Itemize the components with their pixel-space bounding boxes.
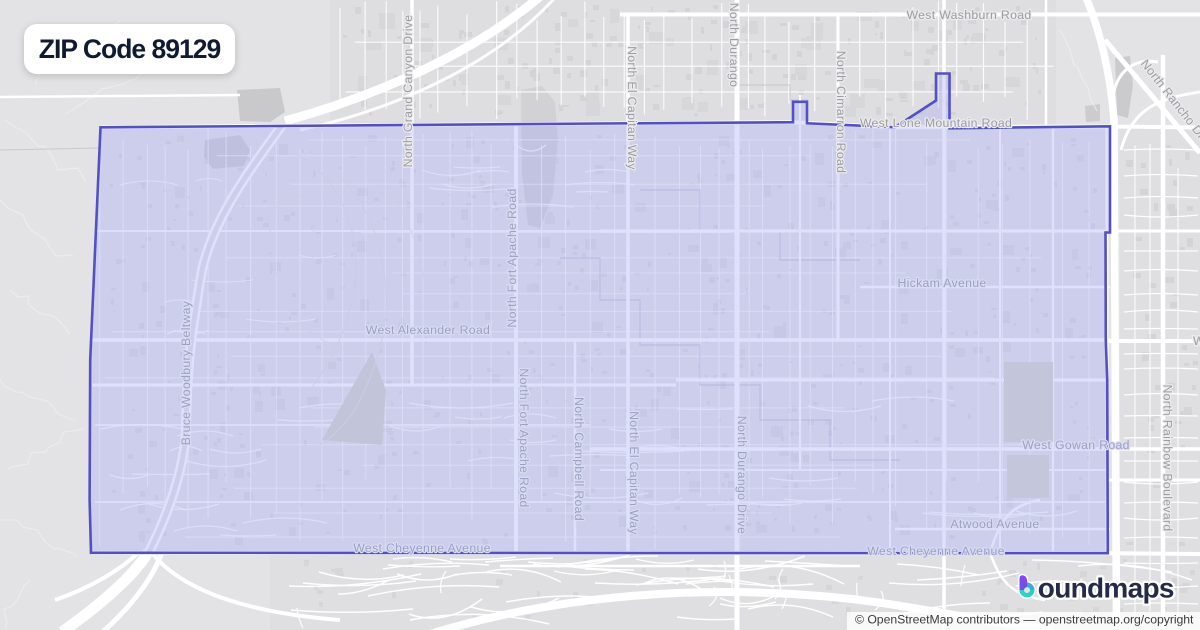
svg-text:West Cheyenne Avenue: West Cheyenne Avenue	[867, 544, 1005, 558]
svg-text:North Cimarron Road: North Cimarron Road	[834, 51, 848, 174]
svg-text:Atwood Avenue: Atwood Avenue	[950, 517, 1039, 531]
svg-text:North El Capitan Way: North El Capitan Way	[627, 411, 641, 535]
svg-text:West Washburn Road: West Washburn Road	[906, 8, 1031, 22]
svg-text:North Rainbow Boulevard: North Rainbow Boulevard	[1161, 384, 1175, 531]
svg-text:West Alexander Road: West Alexander Road	[366, 323, 490, 337]
svg-text:West Cheyenne Avenue: West Cheyenne Avenue	[353, 541, 491, 555]
svg-text:North Grand Canyon Drive: North Grand Canyon Drive	[401, 15, 415, 168]
svg-text:North Durango Drive: North Durango Drive	[735, 416, 749, 534]
svg-text:North Durango: North Durango	[727, 3, 741, 88]
svg-text:Hickam Avenue: Hickam Avenue	[897, 276, 986, 290]
svg-text:Bruce Woodbury Beltway: Bruce Woodbury Beltway	[179, 300, 193, 445]
svg-text:oundmaps: oundmaps	[1038, 573, 1174, 604]
svg-text:West: West	[1193, 334, 1200, 348]
svg-text:© OpenStreetMap contributors —: © OpenStreetMap contributors — openstree…	[855, 613, 1194, 627]
svg-text:North El Capitan Way: North El Capitan Way	[625, 46, 639, 170]
svg-text:North Fort Apache Road: North Fort Apache Road	[505, 188, 519, 327]
svg-text:West Gowan Road: West Gowan Road	[1022, 438, 1129, 452]
svg-text:West Lone Mountain Road: West Lone Mountain Road	[860, 116, 1012, 130]
svg-text:North Campbell Road: North Campbell Road	[572, 397, 586, 521]
svg-text:North Fort Apache Road: North Fort Apache Road	[517, 368, 531, 507]
